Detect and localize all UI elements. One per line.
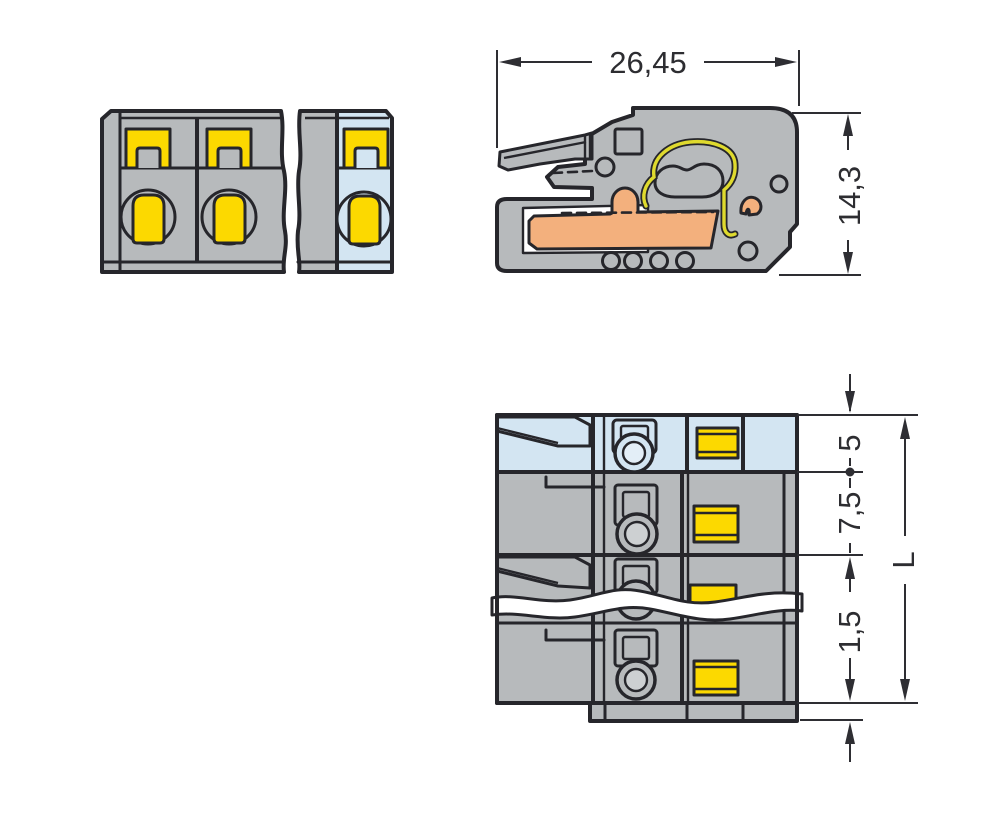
contact-slot-1 xyxy=(133,195,164,243)
coding-slot-row2 xyxy=(694,506,738,542)
coding-slot-row1 xyxy=(697,428,738,458)
dim-label-pole-offset: 5 xyxy=(832,434,867,451)
contact-slot-2 xyxy=(214,195,245,243)
mould-hole-5 xyxy=(771,176,787,192)
pivot-hole xyxy=(596,158,614,176)
mould-hole-1 xyxy=(603,253,620,270)
dim-label-width: 26,45 xyxy=(609,45,687,80)
contact-slot-3 xyxy=(349,196,380,244)
mould-hole-6 xyxy=(739,242,757,260)
side-section-view xyxy=(497,108,797,271)
front-view xyxy=(102,111,392,272)
mould-hole-4 xyxy=(677,253,694,270)
spring-cavity xyxy=(655,164,723,197)
mould-hole-3 xyxy=(651,253,668,270)
bottom-view-dimensions: 5 7,5 1,5 L xyxy=(797,374,921,762)
bottom-view xyxy=(492,415,802,721)
dim-label-length: L xyxy=(886,551,921,568)
dim-label-height: 14,3 xyxy=(832,166,867,226)
dim-label-pitch: 7,5 xyxy=(832,491,867,534)
dim-label-foot: 1,5 xyxy=(832,610,867,653)
test-port xyxy=(615,129,642,154)
technical-drawing: 26,45 14,3 xyxy=(0,0,1000,815)
mould-hole-2 xyxy=(625,253,642,270)
drawing-canvas: 26,45 14,3 xyxy=(0,0,1000,815)
strain-relief-foot xyxy=(590,703,797,721)
busbar-curl xyxy=(741,197,761,215)
